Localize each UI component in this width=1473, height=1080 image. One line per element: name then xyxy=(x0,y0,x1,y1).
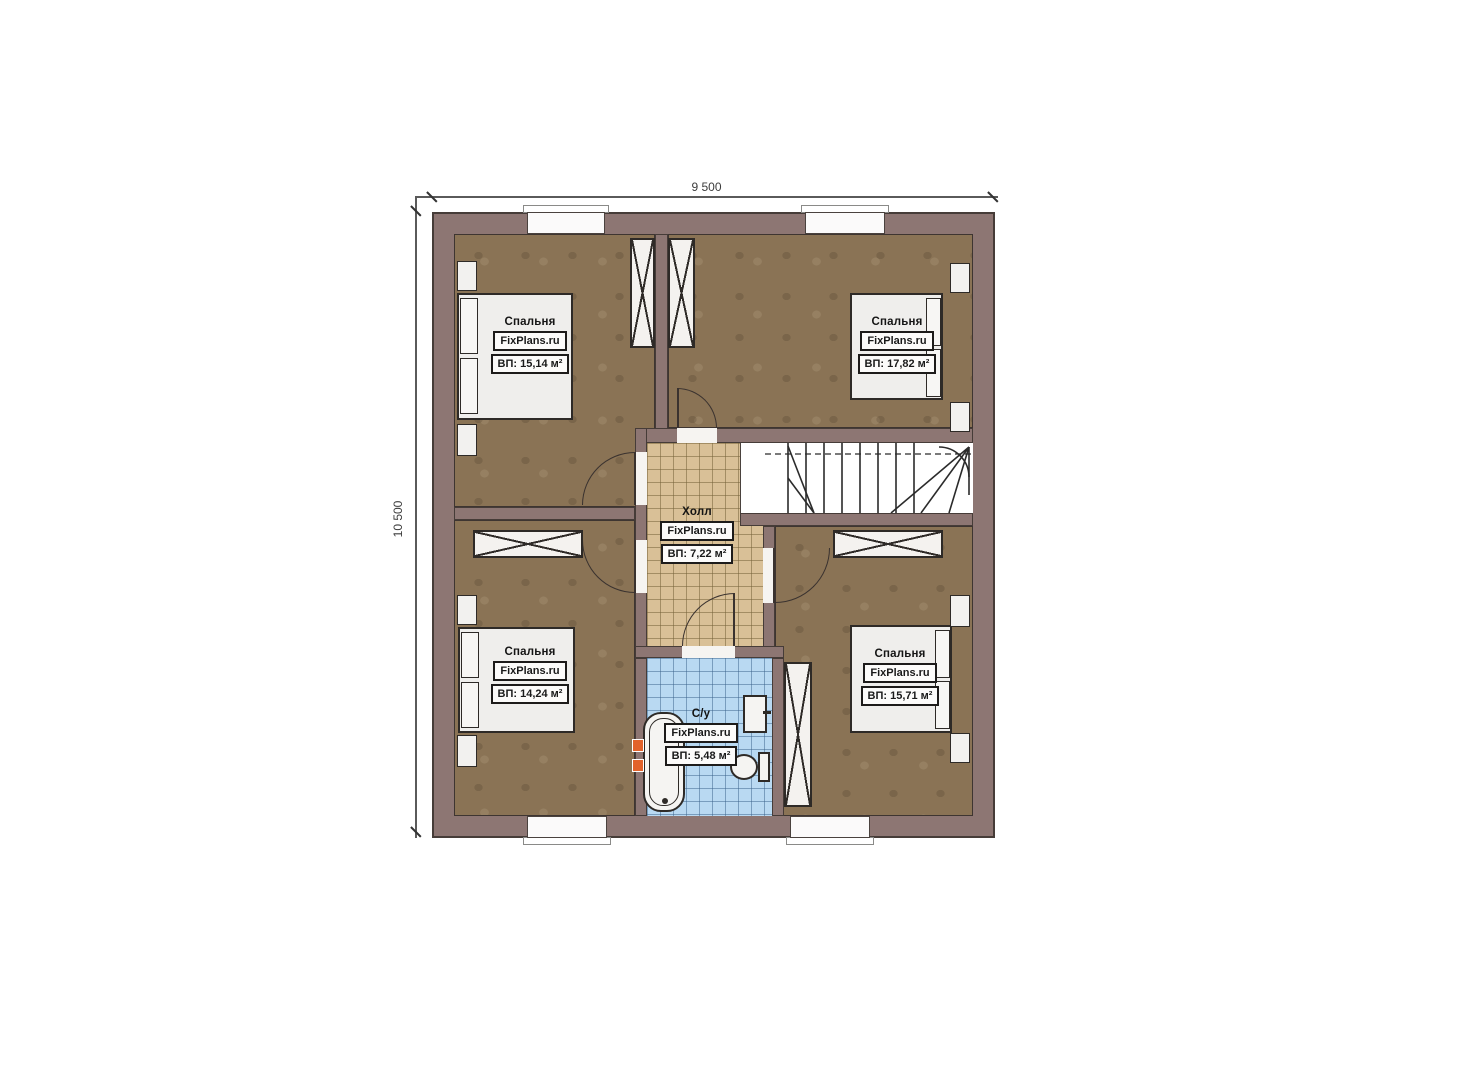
brand-watermark: FixPlans.ru xyxy=(493,331,566,351)
brand-watermark: FixPlans.ru xyxy=(664,723,737,743)
floor-plan: Спальня FixPlans.ru ВП: 15,14 м² Спальня… xyxy=(432,212,995,838)
radiator xyxy=(950,402,970,432)
wall-partition-top xyxy=(655,234,668,443)
window-top-left xyxy=(527,212,605,234)
door-leaf xyxy=(634,540,636,593)
floor-plan-sheet: 9 500 10 500 xyxy=(0,0,1473,1080)
door-leaf xyxy=(733,593,735,646)
radiator xyxy=(457,735,477,767)
radiator xyxy=(457,595,477,625)
radiator xyxy=(950,263,970,293)
radiator xyxy=(457,261,477,291)
room-name: Спальня xyxy=(874,648,925,660)
room-area: ВП: 17,82 м² xyxy=(858,354,937,374)
room-name: Спальня xyxy=(504,316,555,328)
room-area: ВП: 15,71 м² xyxy=(861,686,940,706)
window-sill xyxy=(786,837,874,845)
door-opening xyxy=(682,646,735,658)
wall-under-stairs xyxy=(740,513,973,526)
wardrobe xyxy=(630,238,655,348)
wardrobe xyxy=(833,530,943,558)
room-area: ВП: 15,14 м² xyxy=(491,354,570,374)
sink-faucet xyxy=(763,711,771,714)
room-name: С/у xyxy=(692,708,711,720)
brand-watermark: FixPlans.ru xyxy=(860,331,933,351)
room-label-bedroom-bottom-left: Спальня FixPlans.ru ВП: 14,24 м² xyxy=(472,646,588,704)
wardrobe xyxy=(784,662,812,807)
wall-bedrooms-left-divider xyxy=(454,507,635,520)
door-leaf xyxy=(773,548,775,603)
room-label-bedroom-bottom-right: Спальня FixPlans.ru ВП: 15,71 м² xyxy=(842,648,958,706)
room-area: ВП: 7,22 м² xyxy=(661,544,734,564)
radiator xyxy=(950,595,970,627)
room-name: Спальня xyxy=(504,646,555,658)
door-opening xyxy=(635,452,647,505)
wardrobe xyxy=(473,530,583,558)
staircase-treads xyxy=(763,443,973,513)
radiator xyxy=(457,424,477,456)
room-label-bedroom-top-left: Спальня FixPlans.ru ВП: 15,14 м² xyxy=(472,316,588,374)
bathtub-drain xyxy=(662,798,668,804)
room-name: Спальня xyxy=(871,316,922,328)
wardrobe xyxy=(668,238,695,348)
room-area: ВП: 14,24 м² xyxy=(491,684,570,704)
brand-watermark: FixPlans.ru xyxy=(863,663,936,683)
room-label-bedroom-top-right: Спальня FixPlans.ru ВП: 17,82 м² xyxy=(839,316,955,374)
door-leaf xyxy=(634,452,636,505)
brand-watermark: FixPlans.ru xyxy=(660,521,733,541)
room-label-bathroom: С/у FixPlans.ru ВП: 5,48 м² xyxy=(643,708,759,766)
wall-bathroom-right xyxy=(772,658,784,816)
brand-watermark: FixPlans.ru xyxy=(493,661,566,681)
toilet-tank xyxy=(758,752,770,782)
room-area: ВП: 5,48 м² xyxy=(665,746,738,766)
stair-landing xyxy=(740,443,763,513)
window-sill xyxy=(523,837,611,845)
window-top-right xyxy=(805,212,885,234)
dimension-line-left xyxy=(415,197,417,838)
window-bottom-right xyxy=(790,816,870,838)
window-bottom-left xyxy=(527,816,607,838)
room-name: Холл xyxy=(682,506,712,518)
room-label-hall: Холл FixPlans.ru ВП: 7,22 м² xyxy=(639,506,755,564)
dimension-width-label: 9 500 xyxy=(415,180,998,194)
door-opening xyxy=(677,428,717,443)
dimension-height-label: 10 500 xyxy=(391,489,405,549)
door-leaf xyxy=(677,388,679,428)
dimension-line-top xyxy=(415,196,998,198)
radiator xyxy=(950,733,970,763)
